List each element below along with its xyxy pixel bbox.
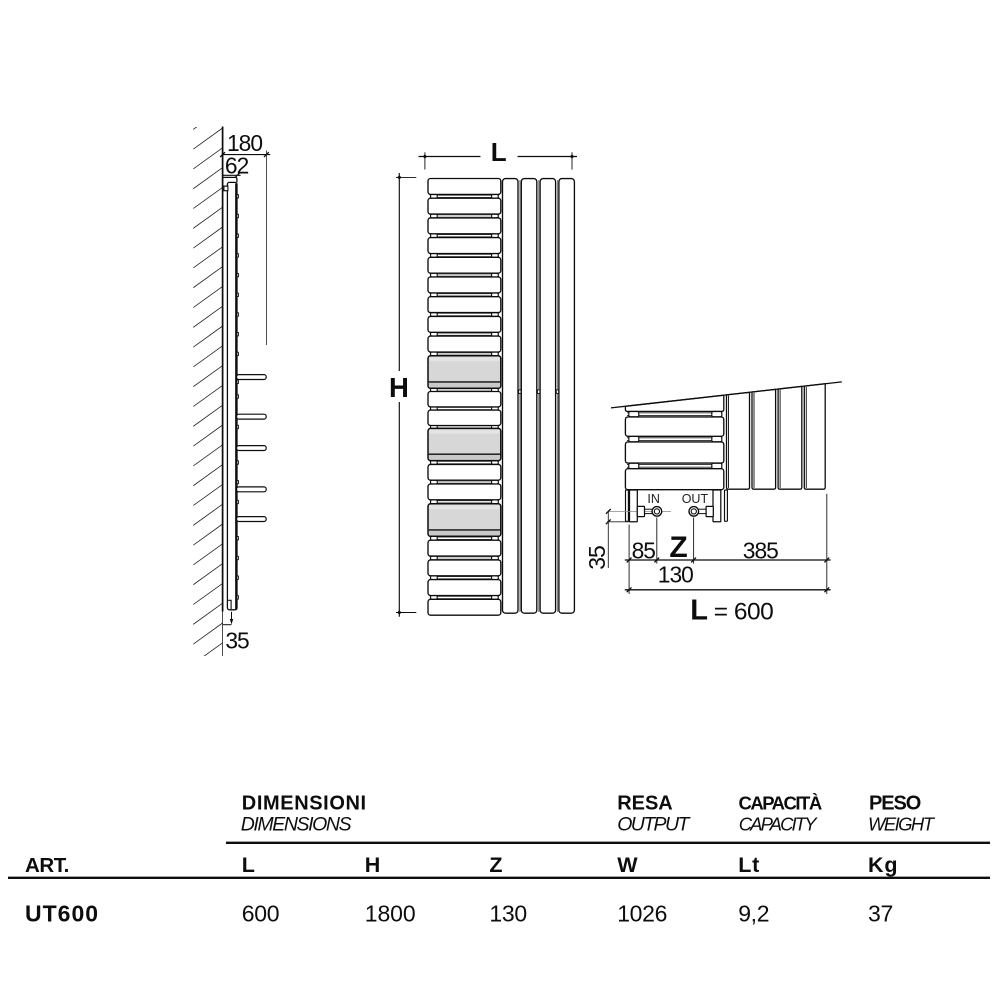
svg-text:H: H	[365, 853, 381, 877]
svg-text:35: 35	[225, 628, 249, 654]
svg-text:35: 35	[584, 546, 610, 570]
svg-text:PESO: PESO	[869, 793, 921, 815]
svg-text:CAPACITÀ: CAPACITÀ	[739, 793, 822, 814]
svg-text:1800: 1800	[365, 901, 416, 927]
svg-text:DIMENSIONS: DIMENSIONS	[241, 813, 352, 835]
svg-text:H: H	[389, 372, 409, 403]
svg-text:37: 37	[868, 901, 893, 927]
svg-text:L: L	[491, 137, 507, 167]
svg-text:Z: Z	[669, 531, 687, 564]
svg-text:OUT: OUT	[682, 492, 709, 506]
svg-text:62: 62	[225, 152, 249, 178]
svg-text:ART.: ART.	[25, 854, 69, 877]
svg-text:L: L	[242, 853, 255, 877]
svg-text:OUTPUT: OUTPUT	[617, 813, 691, 835]
svg-text:CAPACITY: CAPACITY	[739, 813, 819, 834]
svg-text:9,2: 9,2	[738, 901, 769, 927]
svg-text:UT600: UT600	[25, 901, 99, 927]
svg-text:600: 600	[242, 901, 279, 927]
svg-text:W: W	[617, 853, 638, 877]
svg-text:385: 385	[743, 537, 778, 563]
svg-text:1026: 1026	[617, 901, 667, 927]
svg-text:Z: Z	[489, 853, 502, 877]
svg-text:Kg: Kg	[868, 853, 898, 877]
svg-text:DIMENSIONI: DIMENSIONI	[242, 793, 367, 815]
svg-text:WEIGHT: WEIGHT	[868, 813, 936, 834]
svg-text:85: 85	[632, 537, 656, 563]
svg-text:130: 130	[658, 561, 693, 587]
svg-text:130: 130	[489, 901, 526, 927]
svg-text:IN: IN	[647, 492, 660, 506]
svg-text:L = 600: L = 600	[690, 595, 773, 627]
svg-text:Lt: Lt	[738, 853, 760, 877]
svg-text:RESA: RESA	[617, 793, 673, 815]
